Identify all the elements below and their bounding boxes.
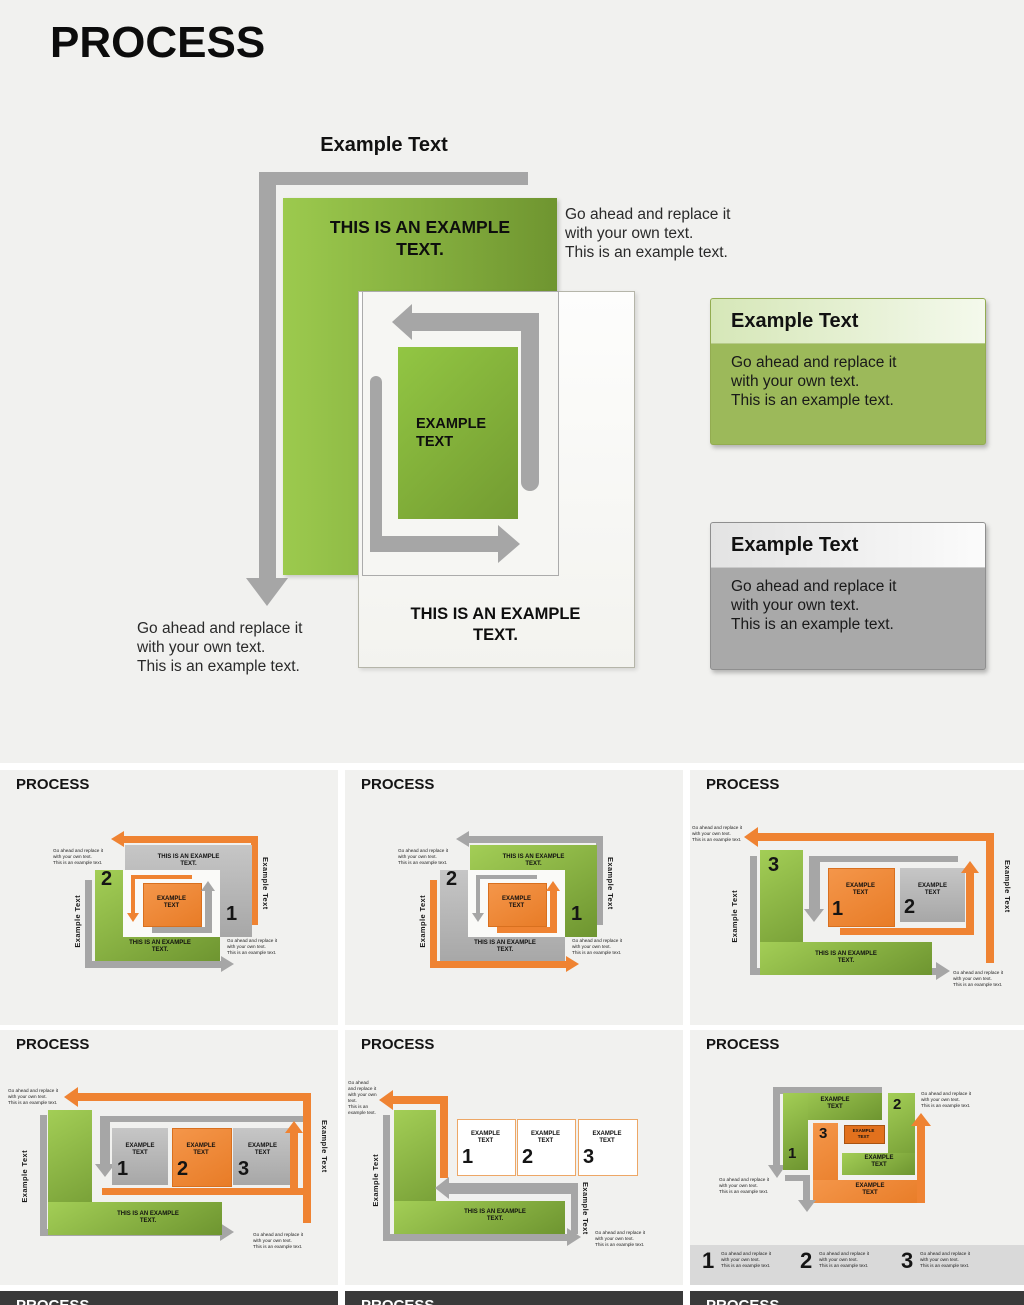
legend-text: Go ahead and replace it with your own te…	[819, 1251, 883, 1269]
gray-loop-bar	[813, 856, 958, 862]
callout-title: Example Text	[711, 299, 985, 344]
legend-text: Go ahead and replace it with your own te…	[721, 1251, 785, 1269]
arrowhead-left-icon	[392, 304, 412, 340]
diagram-heading: Example Text	[262, 134, 506, 157]
arrowhead-up-icon	[285, 1121, 303, 1133]
vertical-label-left: Example Text	[20, 1150, 29, 1203]
orange-loop-bar	[840, 928, 973, 935]
orange-loop-bar	[966, 873, 974, 935]
gray-loop-bar	[205, 890, 212, 933]
step-number: 3	[238, 1158, 249, 1181]
step-text: THIS IS AN EXAMPLE TEXT.	[105, 940, 215, 955]
step-number: 2	[446, 868, 457, 891]
legend-number: 2	[800, 1248, 812, 1274]
arrowhead-right-icon	[221, 956, 234, 972]
thumbnail-process-9[interactable]: PROCESS	[690, 1291, 1024, 1305]
orange-arrow-bar	[251, 836, 258, 925]
vertical-label-left: Example Text	[73, 895, 82, 948]
arrowhead-right-icon	[936, 962, 950, 980]
callout-body: Go ahead and replace it with your own te…	[711, 344, 985, 419]
gray-arrow-bar	[803, 1175, 810, 1202]
step-text: EXAMPLE TEXT	[488, 896, 545, 911]
step-number: 1	[462, 1146, 473, 1169]
arrowhead-right-icon	[498, 525, 520, 563]
step-text: EXAMPLE TEXT	[830, 1183, 910, 1198]
vertical-label-right: Example Text	[606, 857, 615, 910]
page: PROCESS Example Text THIS IS AN EXAMPLE …	[0, 0, 1024, 1305]
gray-arrow-bar	[773, 1087, 780, 1167]
gray-arrow-bar	[469, 836, 603, 843]
callout-green: Example Text Go ahead and replace it wit…	[710, 298, 986, 445]
arrowhead-left-icon	[744, 827, 758, 847]
thumb-title: PROCESS	[361, 1036, 434, 1053]
step-number: 1	[571, 903, 582, 926]
orange-arrow-bar	[430, 961, 566, 968]
step-text: THIS IS AN EXAMPLE TEXT.	[480, 854, 587, 869]
vertical-label-left: Example Text	[371, 1154, 380, 1207]
gray-loop-bar	[809, 856, 820, 911]
arrowhead-down-icon	[472, 913, 484, 922]
thumbnail-process-7[interactable]: PROCESS	[0, 1291, 338, 1305]
orange-arrow-bar	[303, 1093, 311, 1223]
gray-loop-bar	[100, 1116, 303, 1122]
thumb-title: PROCESS	[706, 1297, 779, 1305]
vertical-label-right: Example Text	[1003, 860, 1012, 913]
arrowhead-left-icon	[379, 1090, 393, 1110]
paragraph: Go ahead and replace it with your own te…	[719, 1177, 779, 1195]
orange-loop-bar	[131, 875, 135, 914]
paragraph: Go ahead and replace it with your own te…	[398, 848, 464, 866]
arrowhead-up-icon	[961, 861, 979, 873]
step-number: 3	[768, 854, 779, 877]
thumb-title: PROCESS	[16, 1297, 89, 1305]
step-text: EXAMPLE TEXT	[844, 1128, 883, 1139]
orange-loop-bar	[131, 875, 192, 879]
step-text: EXAMPLE TEXT	[112, 1143, 168, 1158]
gray-arrow-bar	[571, 1183, 578, 1234]
gray-arrow-bar	[259, 172, 276, 578]
green-step-text: THIS IS AN EXAMPLE TEXT.	[283, 216, 557, 260]
thumbnail-process-3[interactable]: PROCESS Go ahead and replace it with you…	[690, 770, 1024, 1025]
step-number: 1	[117, 1158, 128, 1181]
thumb-title: PROCESS	[706, 776, 779, 793]
step-number: 2	[177, 1158, 188, 1181]
thumb-title: PROCESS	[706, 1036, 779, 1053]
step-text: EXAMPLE TEXT	[800, 1097, 870, 1112]
thumbnail-process-5[interactable]: PROCESS Go ahead and replace it with you…	[345, 1030, 683, 1285]
paragraph: Go ahead and replace it with your own te…	[53, 848, 119, 866]
arrowhead-down-icon	[127, 913, 139, 922]
vertical-label-right: Example Text	[320, 1120, 329, 1173]
arrowhead-down-icon	[804, 909, 824, 922]
step-text: THIS IS AN EXAMPLE TEXT.	[425, 1209, 565, 1224]
thumb-title: PROCESS	[16, 1036, 89, 1053]
gray-loop-bar	[476, 875, 480, 914]
arrowhead-right-icon	[566, 956, 579, 972]
step-number: 2	[101, 868, 112, 891]
thumbnail-process-6[interactable]: PROCESS EXAMPLE TEXT 2 1 EXAMPLE TEXT 3 …	[690, 1030, 1024, 1285]
paragraph: Go ahead and replace it with your own te…	[572, 938, 638, 956]
arrowhead-up-icon	[201, 881, 215, 891]
step-text: THIS IS AN EXAMPLE TEXT.	[135, 854, 242, 869]
step-number: 2	[904, 896, 915, 919]
arrowhead-left-icon	[456, 831, 469, 847]
arrowhead-left-icon	[64, 1087, 78, 1107]
step-text: EXAMPLE TEXT	[578, 1131, 636, 1146]
step-number: 1	[788, 1145, 796, 1162]
step-text: EXAMPLE TEXT	[845, 1155, 913, 1170]
arrowhead-up-icon	[911, 1113, 931, 1126]
orange-loop-bar	[550, 890, 557, 933]
step-number: 2	[893, 1096, 901, 1113]
loop-green-text: EXAMPLE TEXT	[398, 415, 486, 451]
arrowhead-left-icon	[435, 1177, 449, 1199]
step-text: EXAMPLE TEXT	[517, 1131, 574, 1146]
thumbnail-process-2[interactable]: PROCESS Go ahead and replace it with you…	[345, 770, 683, 1025]
paragraph: Go ahead and replace it with your own te…	[8, 1088, 68, 1106]
paragraph: Go ahead and replace it with your own te…	[595, 1230, 659, 1248]
step-text: THIS IS AN EXAMPLE TEXT.	[450, 940, 560, 955]
gray-arrow-bar	[383, 1115, 390, 1241]
bottom-step-text: THIS IS AN EXAMPLE TEXT.	[358, 604, 633, 646]
orange-loop-bar	[290, 1133, 298, 1195]
paragraph: Go ahead and replace it with your own te…	[253, 1232, 317, 1250]
loop-green-box: EXAMPLE TEXT	[398, 347, 518, 519]
paragraph: Go ahead and replace it with your own te…	[227, 938, 293, 956]
arrowhead-right-icon	[220, 1223, 234, 1241]
callout-title: Example Text	[711, 523, 985, 568]
loop-arrow-bar	[370, 376, 382, 552]
step-number: 1	[226, 903, 237, 926]
thumbnail-process-8[interactable]: PROCESS	[345, 1291, 683, 1305]
bottom-left-paragraph: Go ahead and replace it with your own te…	[137, 619, 327, 676]
paragraph: Go ahead and replace it with your own te…	[921, 1091, 983, 1109]
orange-arrow-bar	[917, 1125, 925, 1203]
step-text: EXAMPLE TEXT	[143, 896, 200, 911]
orange-arrow-bar	[124, 836, 258, 843]
step-text: EXAMPLE TEXT	[828, 883, 893, 898]
gray-loop-bar	[476, 875, 537, 879]
gray-arrow-bar	[40, 1115, 47, 1236]
arrowhead-up-icon	[546, 881, 560, 891]
gray-arrow-bar	[85, 961, 221, 968]
thumb-title: PROCESS	[361, 776, 434, 793]
orange-arrow-bar	[986, 833, 994, 963]
paragraph: Go ahead and replace it with your own te…	[953, 970, 1017, 988]
gray-arrow-bar	[85, 880, 92, 968]
gray-arrow-bar	[383, 1234, 567, 1241]
right-paragraph: Go ahead and replace it with your own te…	[565, 205, 750, 262]
vertical-label-left: Example Text	[418, 895, 427, 948]
loop-arrow-bar	[521, 313, 539, 491]
vertical-label-right: Example Text	[581, 1182, 590, 1235]
orange-arrow-bar	[758, 833, 994, 841]
step-number: 1	[832, 898, 843, 921]
step-text: THIS IS AN EXAMPLE TEXT.	[776, 951, 916, 966]
orange-arrow-bar	[440, 1096, 448, 1178]
legend-number: 1	[702, 1248, 714, 1274]
step-number: 3	[819, 1125, 827, 1142]
arrowhead-down-icon	[246, 578, 288, 606]
page-title: PROCESS	[50, 18, 265, 68]
step-number: 2	[522, 1146, 533, 1169]
arrowhead-left-icon	[111, 831, 124, 847]
step-number: 3	[583, 1146, 594, 1169]
orange-arrow-bar	[78, 1093, 311, 1101]
orange-arrow-bar	[430, 880, 437, 968]
gray-loop-bar	[152, 927, 212, 933]
step-text: EXAMPLE TEXT	[457, 1131, 514, 1146]
step-text: EXAMPLE TEXT	[233, 1143, 292, 1158]
orange-loop-bar	[102, 1188, 303, 1195]
loop-arrow-bar	[370, 536, 498, 552]
legend-text: Go ahead and replace it with your own te…	[920, 1251, 984, 1269]
gray-arrow-bar	[750, 856, 757, 975]
gray-arrow-bar	[259, 172, 528, 185]
gray-arrow-bar	[596, 836, 603, 925]
vertical-label-right: Example Text	[261, 857, 270, 910]
vertical-label-left: Example Text	[730, 890, 739, 943]
thumbnail-process-1[interactable]: PROCESS Go ahead and replace it with you…	[0, 770, 338, 1025]
gray-arrow-bar	[449, 1183, 578, 1194]
thumb-title: PROCESS	[361, 1297, 434, 1305]
callout-body: Go ahead and replace it with your own te…	[711, 568, 985, 643]
paragraph: Go ahead and replace it with your own te…	[692, 825, 752, 843]
arrowhead-down-icon	[798, 1200, 816, 1212]
main-slide: PROCESS Example Text THIS IS AN EXAMPLE …	[0, 0, 1024, 763]
thumb-title: PROCESS	[16, 776, 89, 793]
callout-gray: Example Text Go ahead and replace it wit…	[710, 522, 986, 670]
gray-loop-bar	[100, 1116, 110, 1166]
thumbnail-process-4[interactable]: PROCESS Go ahead and replace it with you…	[0, 1030, 338, 1285]
step-text: THIS IS AN EXAMPLE TEXT.	[78, 1211, 218, 1226]
legend-number: 3	[901, 1248, 913, 1274]
orange-loop-bar	[497, 927, 557, 933]
loop-arrow-bar	[411, 313, 539, 331]
step-text: EXAMPLE TEXT	[172, 1143, 230, 1158]
